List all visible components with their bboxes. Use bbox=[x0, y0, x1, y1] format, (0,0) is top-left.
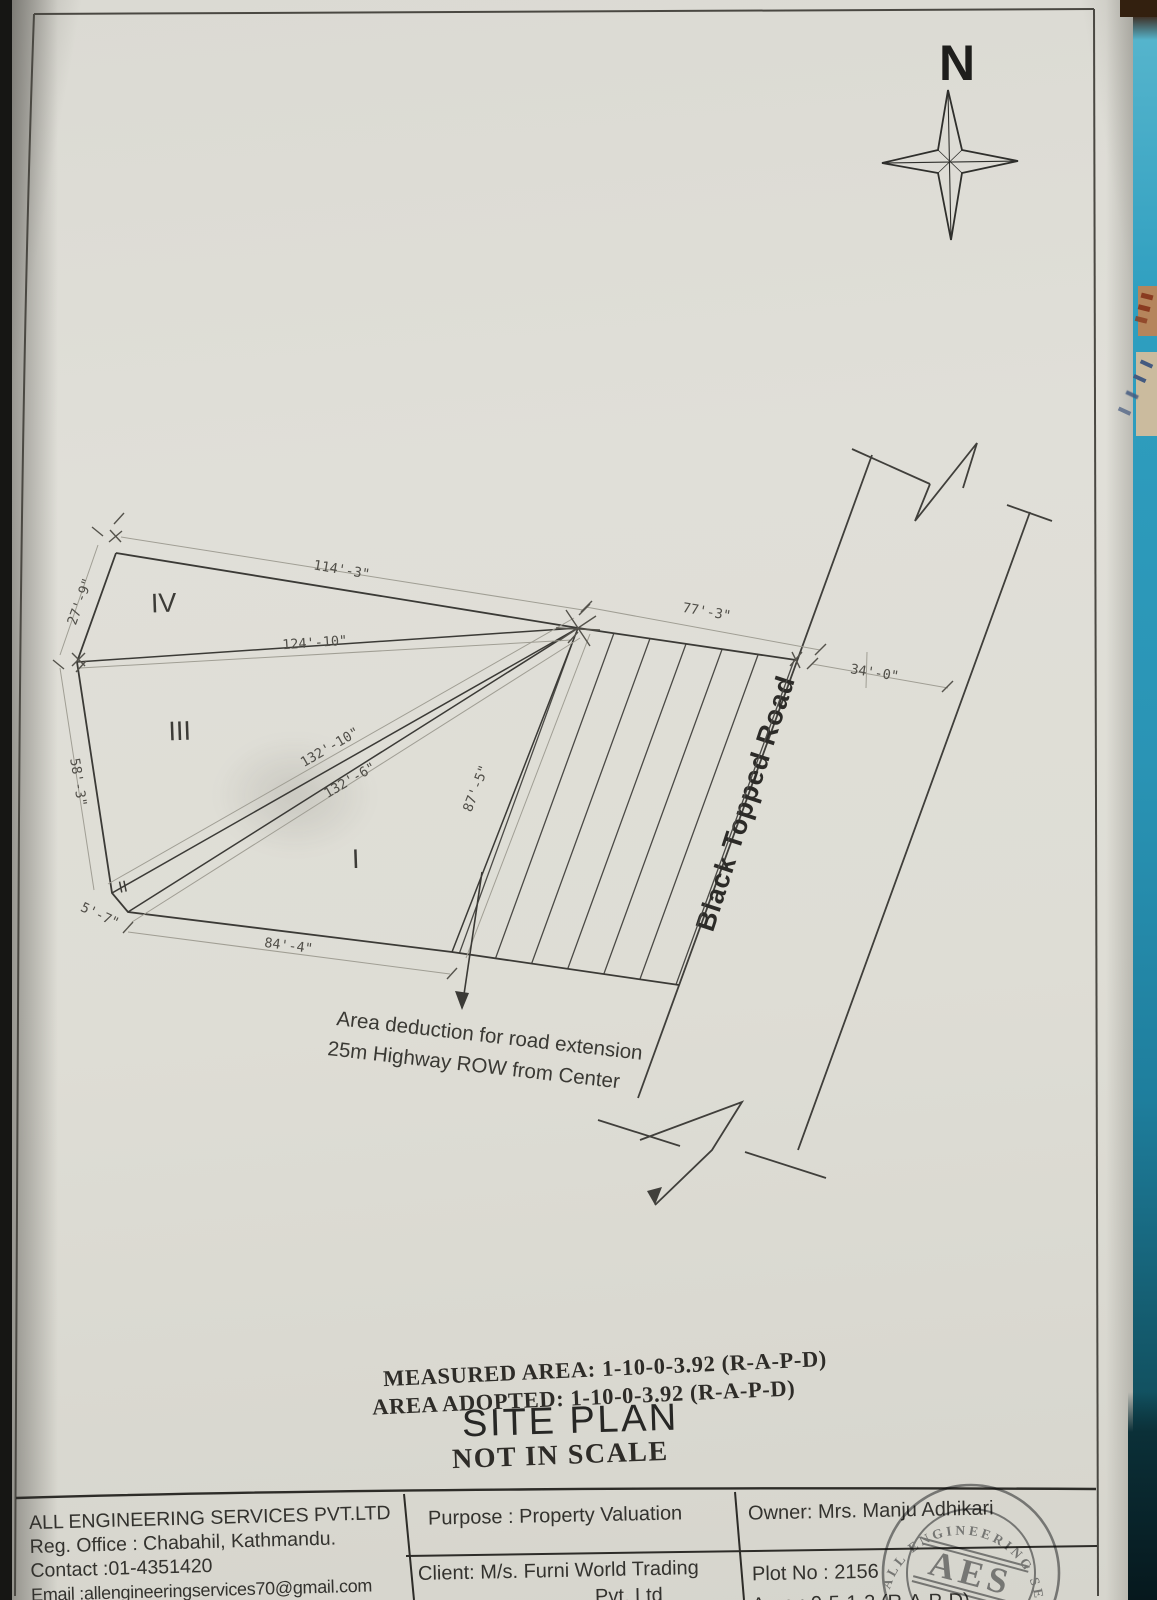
dimension-lines bbox=[60, 537, 948, 974]
dim-124-10: 124'-10" bbox=[282, 633, 348, 653]
dim-58-3: 58'-3" bbox=[66, 757, 89, 808]
dimension-ticks bbox=[53, 513, 953, 979]
scanned-site-plan-page: N Black Topped Road bbox=[0, 0, 1157, 1600]
north-label: N bbox=[939, 35, 975, 91]
parcel-label-III: III bbox=[168, 716, 192, 747]
dim-87-5: 87'-5" bbox=[460, 763, 492, 814]
plot-boundary bbox=[77, 553, 796, 985]
parcel-label-I: I bbox=[351, 844, 360, 874]
dim-132-6: 132'-6" bbox=[321, 759, 378, 801]
leader-arrow bbox=[455, 872, 482, 1010]
dim-114-3: 114'-3" bbox=[312, 557, 371, 582]
deduction-note: Area deduction for road extension 25m Hi… bbox=[326, 1007, 643, 1093]
dim-84-4: 84'-4" bbox=[263, 935, 313, 957]
dim-132-10: 132'-10" bbox=[298, 724, 362, 770]
road-break-bottom bbox=[598, 1102, 826, 1205]
plot-no-cell: Plot No : 2156 bbox=[752, 1561, 879, 1587]
dim-5-7: 5'-7" bbox=[78, 900, 122, 932]
north-compass-icon: N bbox=[882, 35, 1018, 240]
road bbox=[598, 443, 1052, 1205]
parcel-label-II: II bbox=[117, 878, 129, 896]
parcel-label-IV: IV bbox=[150, 588, 177, 619]
company-seal-stamp: ALL ENGINEERING SERVICES Pvt. Ltd. AES bbox=[866, 1478, 1076, 1600]
client-cell-line2: Pvt. Ltd bbox=[595, 1584, 663, 1600]
dim-34-0: 34'-0" bbox=[849, 661, 900, 684]
dim-77-3: 77'-3" bbox=[681, 600, 732, 624]
road-label: Black Topped Road bbox=[690, 672, 801, 935]
road-break-top bbox=[852, 443, 1052, 521]
company-info-cell: ALL ENGINEERING SERVICES PVT.LTD Reg. Of… bbox=[29, 1501, 393, 1600]
